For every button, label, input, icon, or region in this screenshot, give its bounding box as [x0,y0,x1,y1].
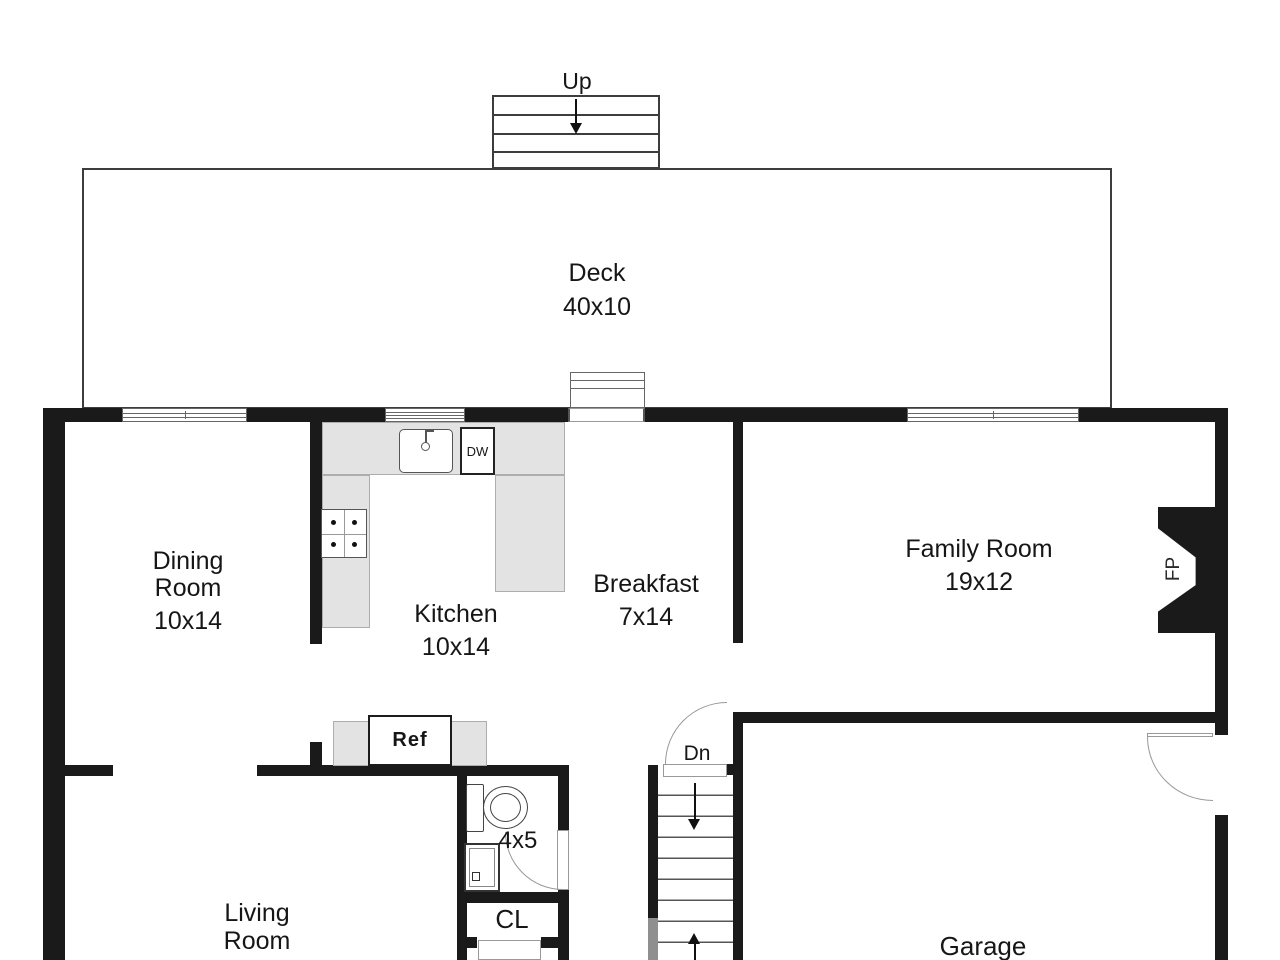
closet-door-leaf [478,940,541,960]
fireplace-label: FP [1148,541,1200,597]
faucet-handle [425,430,434,432]
deck-door-landing [570,372,645,408]
kitchen-window [385,408,465,422]
bathroom-dims: 4x5 [499,827,538,855]
wall-top-5 [1079,408,1228,422]
burner-icon [331,542,336,547]
garage-door-swing [1147,737,1213,801]
closet-label: CL [495,904,528,935]
wall-right-lower [1215,815,1228,960]
dishwasher-label: DW [467,444,489,459]
floor-plan: Up Deck 40x10 [0,0,1280,960]
dining-room-name-line2: Room [153,575,224,602]
down-arrowhead [688,819,700,830]
down-label: Dn [684,742,711,766]
kitchen-dims: 10x14 [414,634,497,661]
bath-vanity-icon [464,843,500,892]
wall-stairs-right [733,712,743,960]
down-arrow [694,783,696,821]
window-line [386,412,464,413]
living-room-name-line1: Living [223,899,291,927]
vanity-drain [472,872,480,881]
landing-step-line [571,388,644,389]
range-cooktop-icon [321,509,367,558]
wall-top-3 [465,408,568,422]
cooktop-grid-line [322,534,366,535]
dining-room-name-line1: Dining [153,548,224,575]
deck-label: Deck 40x10 [563,256,631,324]
breakfast-dims: 7x14 [593,604,699,631]
burner-icon [352,520,357,525]
wall-left [43,408,65,960]
family-room-name: Family Room [905,536,1052,563]
dining-room-label: Dining Room 10x14 [153,548,224,635]
wall-right-upper [1215,408,1228,735]
toilet-bowl-icon [483,786,528,829]
deck-sliding-door [568,408,645,422]
wall-living-stub [65,765,113,776]
breakfast-label: Breakfast 7x14 [593,571,699,631]
burner-icon [352,542,357,547]
faucet-icon [421,442,430,451]
up-stairs-arrowhead [570,123,582,134]
dining-window [122,408,247,422]
landing-step-line [571,380,644,381]
deck-name: Deck [563,256,631,290]
stair-tread-line [494,151,658,153]
garage-label: Garage [940,931,1027,960]
wall-stairs-left-railing [648,918,658,960]
wall-stairs-left [648,765,658,918]
up-arrow [694,944,696,960]
living-room-name-line2: Room [223,927,291,955]
up-stairs-arrow [575,99,577,124]
wall-breakfast-family [733,408,743,643]
wall-bath-closet-divider [457,892,568,903]
kitchen-name: Kitchen [414,601,497,628]
family-room-window [907,408,1079,422]
wall-closet-bottom-left [457,937,477,948]
dining-room-dims: 10x14 [153,608,224,635]
wall-kitchen-bottom [257,765,568,776]
window-slider-tick [993,411,994,419]
window-slider-tick [185,411,186,419]
wall-top-4 [645,408,907,422]
vanity-basin [469,848,495,887]
kitchen-counter-peninsula [495,475,565,592]
up-arrowhead [688,933,700,944]
family-room-dims: 19x12 [905,569,1052,596]
faucet-stem [425,430,427,443]
up-label: Up [562,68,591,95]
toilet-bowl-inner [490,793,521,822]
wall-closet-bottom-right [541,937,568,948]
breakfast-name: Breakfast [593,571,699,598]
deck-dims: 40x10 [563,290,631,324]
living-room-label: Living Room 16x12 [223,899,291,960]
dishwasher-icon: DW [460,427,495,475]
family-room-label: Family Room 19x12 [905,536,1052,596]
refrigerator-label: Ref [392,729,427,752]
window-line [386,418,464,419]
toilet-tank-icon [466,784,484,832]
window-line [386,415,464,416]
burner-icon [331,520,336,525]
wall-bath-right-upper [558,765,569,830]
refrigerator-icon: Ref [368,715,452,766]
kitchen-label: Kitchen 10x14 [414,601,497,661]
kitchen-sink-icon [399,429,453,473]
garage-door-opening [1215,735,1228,815]
wall-family-bottom [733,712,1228,723]
